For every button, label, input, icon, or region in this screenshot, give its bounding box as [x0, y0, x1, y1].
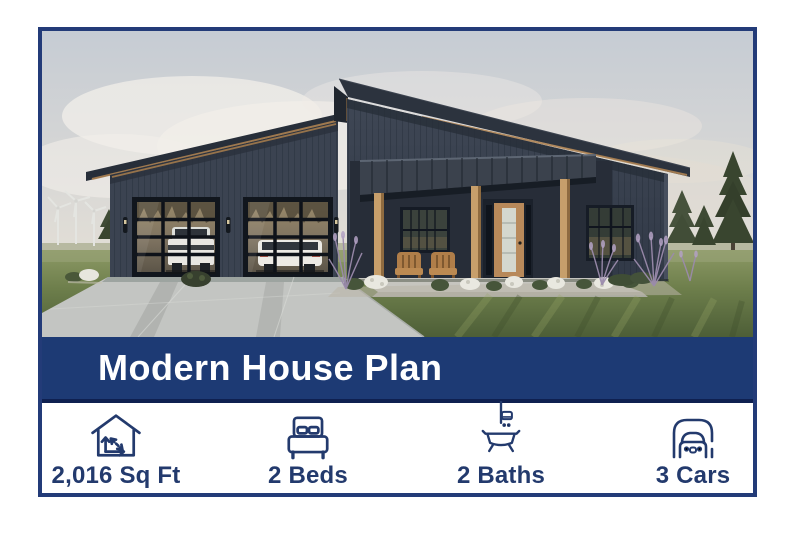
stat-label-baths: 2 Baths: [457, 462, 545, 490]
stat-label-cars: 3 Cars: [656, 462, 731, 490]
front-door: [483, 199, 533, 279]
bed-icon: [281, 403, 335, 461]
stat-cars: 3 Cars: [608, 403, 778, 493]
stat-label-square-feet: 2,016 Sq Ft: [52, 462, 181, 490]
garage-door-right: [243, 197, 333, 277]
page-title: Modern House Plan: [98, 347, 443, 389]
house-plan-card[interactable]: Modern House Plan 2,016 Sq Ft: [38, 27, 757, 497]
stat-baths: 2 Baths: [416, 403, 586, 493]
bath-icon: [477, 401, 525, 461]
title-banner: Modern House Plan: [42, 337, 753, 403]
car-icon: [667, 403, 719, 461]
house-photo-illustration: [42, 31, 753, 337]
stat-label-beds: 2 Beds: [268, 462, 348, 490]
porch-window: [400, 207, 450, 253]
stats-bar: 2,016 Sq Ft 2 Beds: [42, 403, 753, 493]
garage-door-left: [132, 197, 220, 277]
house-photo: [42, 31, 753, 337]
stat-beds: 2 Beds: [223, 403, 393, 493]
floor-area-icon: [88, 403, 144, 461]
stat-square-feet: 2,016 Sq Ft: [31, 403, 201, 493]
